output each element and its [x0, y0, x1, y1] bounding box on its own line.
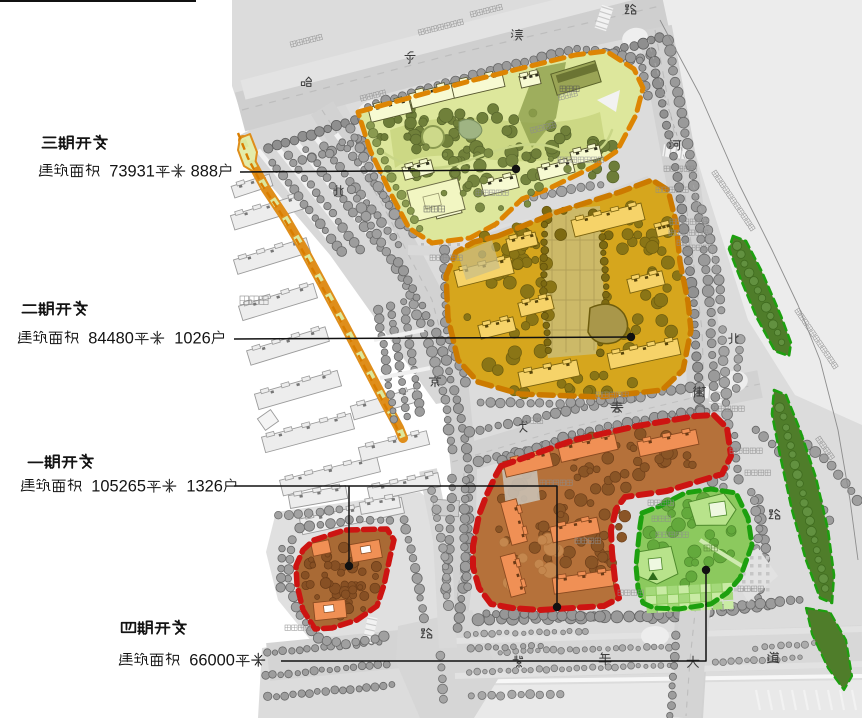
svg-text:1026: 1026: [174, 329, 210, 347]
svg-text:105265: 105265: [91, 477, 146, 495]
svg-text:1326: 1326: [186, 477, 222, 495]
svg-text:73931: 73931: [109, 162, 155, 180]
svg-text:888: 888: [191, 162, 218, 180]
svg-text:66000: 66000: [189, 651, 235, 669]
svg-text:84480: 84480: [88, 329, 134, 347]
